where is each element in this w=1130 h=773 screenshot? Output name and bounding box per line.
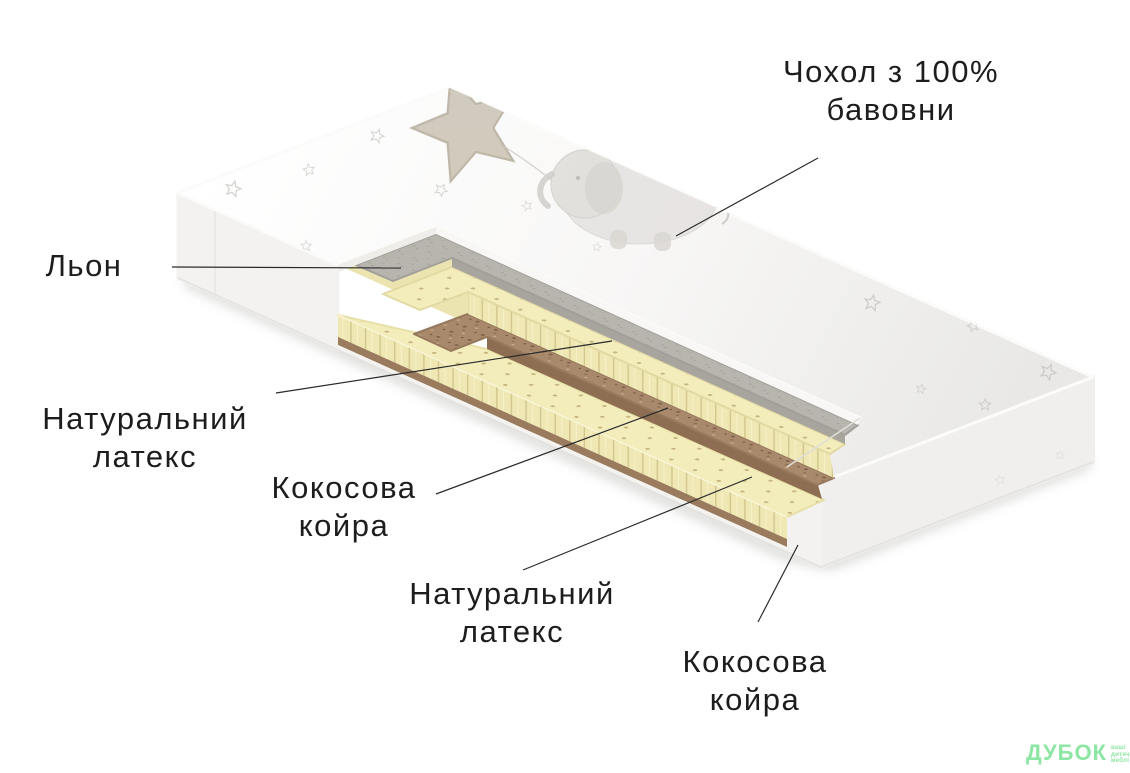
brand-logo-tagline: ваші дитячі меблі: [1111, 745, 1130, 765]
leader-line-coir-bottom: [758, 545, 798, 622]
label-linen: Льон: [46, 247, 123, 285]
brand-logo-text: ДУБОК: [1026, 742, 1107, 764]
mattress-layers-diagram: Чохол з 100% бавовни Льон Натуральний ла…: [0, 0, 1130, 773]
brand-logo: ДУБОК ваші дитячі меблі: [1026, 742, 1130, 765]
label-coir-bottom: Кокосова койра: [683, 643, 828, 719]
label-latex-bottom: Натуральний латекс: [409, 575, 615, 651]
label-latex-top: Натуральний латекс: [42, 400, 248, 476]
label-cover: Чохол з 100% бавовни: [772, 53, 1011, 129]
label-coir-top: Кокосова койра: [272, 469, 417, 545]
